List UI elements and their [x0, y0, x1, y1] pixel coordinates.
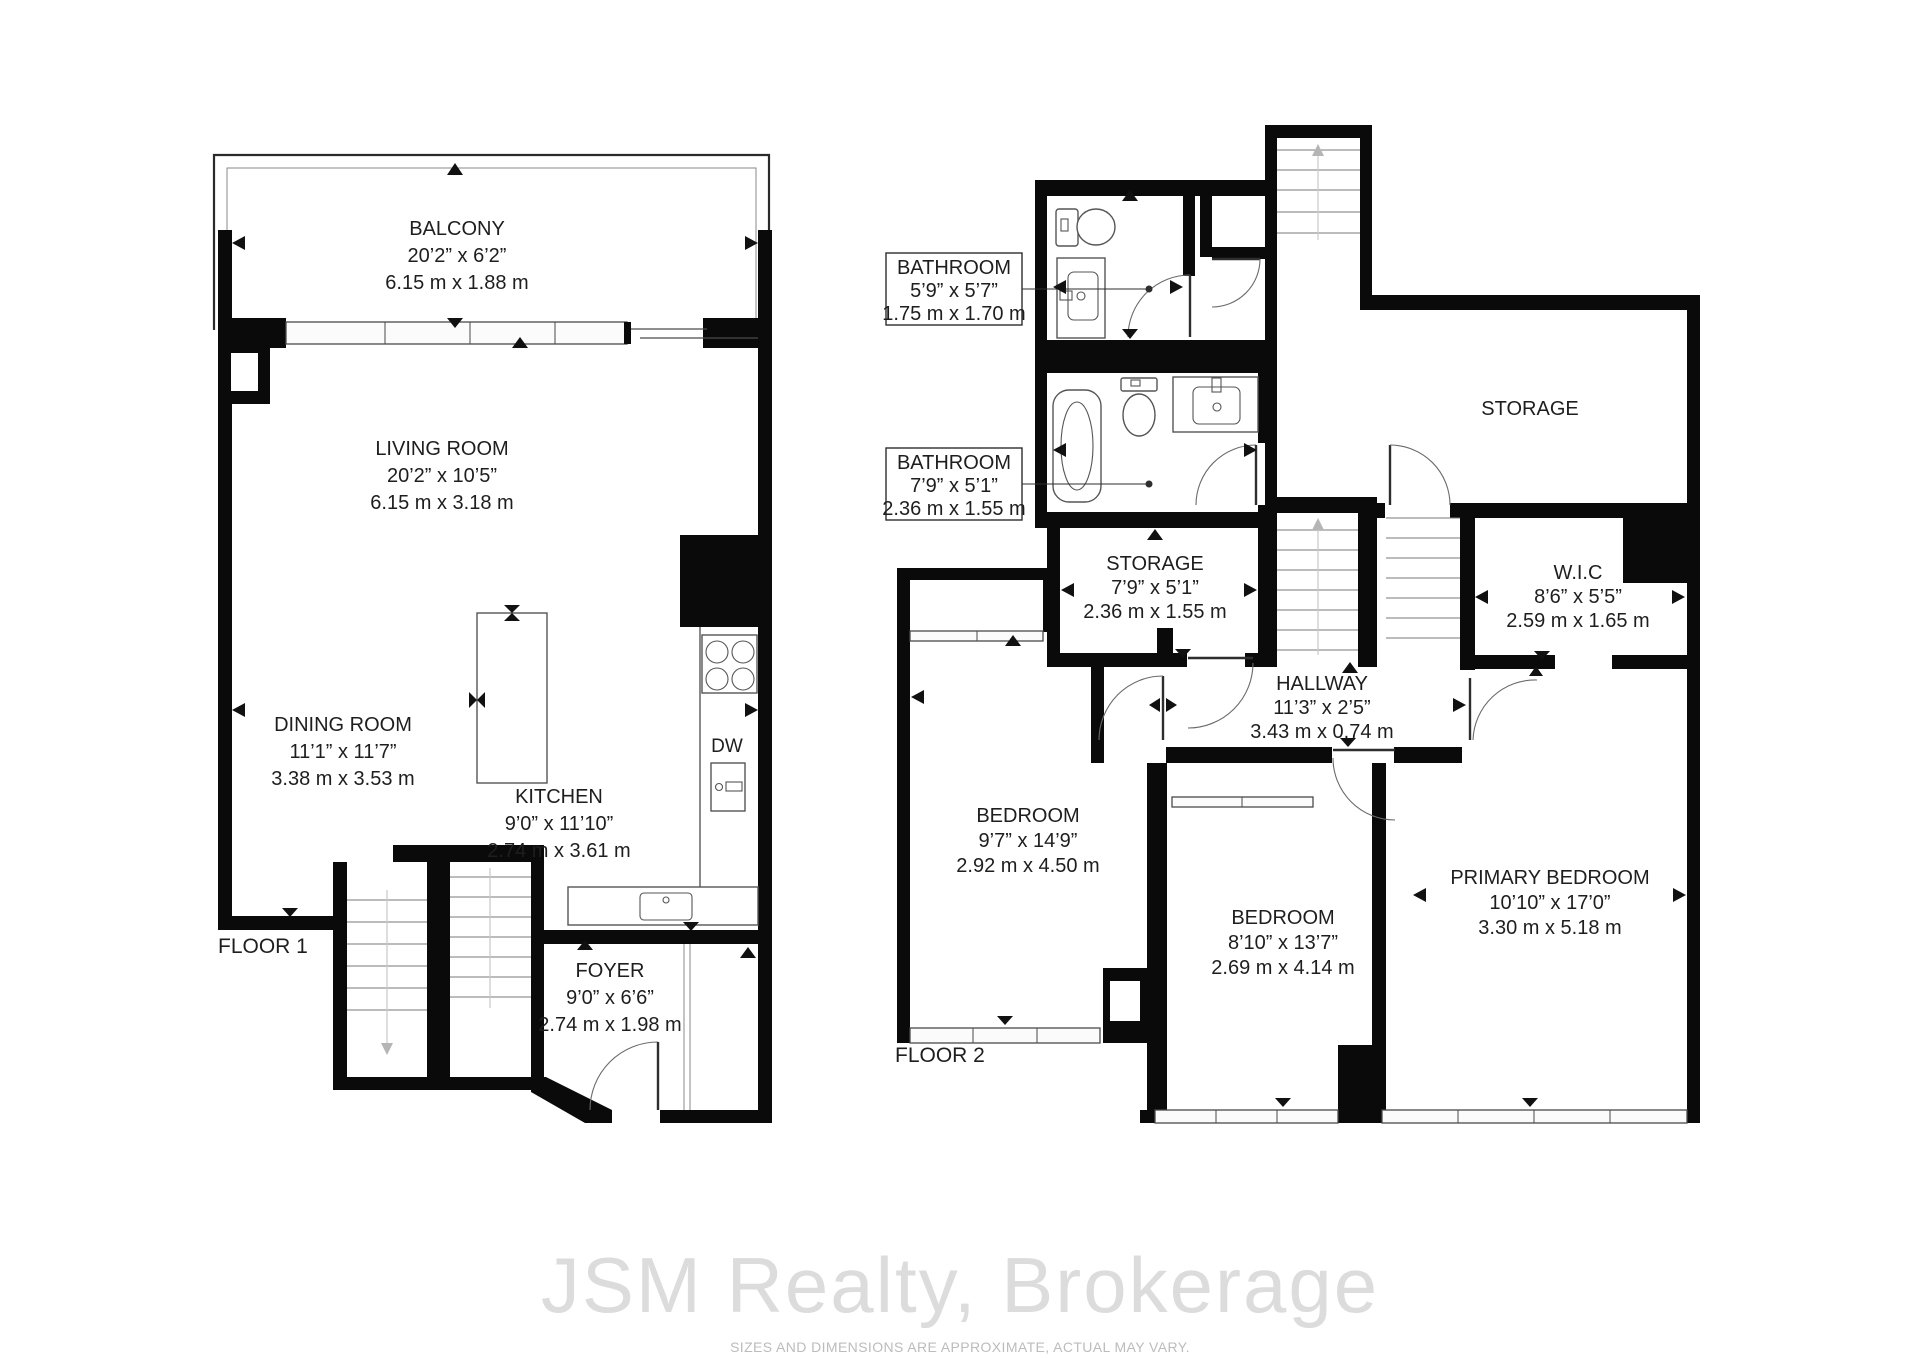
bath-upper-metric: 1.75 m x 1.70 m: [882, 303, 1025, 325]
living-imperial: 20’2” x 10’5”: [387, 465, 497, 487]
room-label-dining: DINING ROOM 11’1” x 11’7” 3.38 m x 3.53 …: [271, 714, 414, 790]
door-bathroom-upper: [1128, 275, 1190, 337]
dining-metric: 3.38 m x 3.53 m: [271, 768, 414, 790]
bedroom-left-imperial: 9’7” x 14’9”: [979, 830, 1078, 852]
bedroom-middle-metric: 2.69 m x 4.14 m: [1211, 957, 1354, 979]
door-storage-small: [1188, 658, 1253, 728]
balcony-metric: 6.15 m x 1.88 m: [385, 272, 528, 294]
bathtub-icon: [1053, 390, 1101, 502]
room-label-foyer: FOYER 9’0” x 6’6” 2.74 m x 1.98 m: [538, 960, 681, 1036]
door-bedroom-left: [1099, 676, 1163, 740]
bath-lower-name: BATHROOM: [897, 452, 1011, 474]
callout-bathroom-upper: BATHROOM 5’9” x 5’7” 1.75 m x 1.70 m: [882, 253, 1152, 325]
primary-name: PRIMARY BEDROOM: [1450, 867, 1649, 889]
kitchen-island: [469, 605, 547, 783]
kitchen-metric: 2.74 m x 3.61 m: [487, 840, 630, 862]
balcony-name: BALCONY: [409, 218, 505, 240]
hallway-metric: 3.43 m x 0.74 m: [1250, 721, 1393, 743]
toilet-icon-lower: [1121, 378, 1157, 436]
primary-imperial: 10’10” x 17’0”: [1489, 892, 1610, 914]
wic-imperial: 8’6” x 5’5”: [1534, 586, 1622, 608]
brokerage-watermark: JSM Realty, Brokerage: [541, 1241, 1379, 1329]
sink-icon-lower: [1173, 377, 1258, 432]
entry-door: [590, 1042, 658, 1110]
disclaimer-text: SIZES AND DIMENSIONS ARE APPROXIMATE, AC…: [730, 1339, 1190, 1355]
storage-large-name: STORAGE: [1481, 398, 1578, 420]
stairs-floor2-top: [1277, 144, 1360, 240]
room-label-kitchen: KITCHEN 9’0” x 11’10” 2.74 m x 3.61 m: [487, 786, 630, 862]
floorplan-canvas: BALCONY 20’2” x 6’2” 6.15 m x 1.88 m LIV…: [0, 0, 1920, 1358]
dishwasher-label: DW: [711, 736, 743, 757]
door-storage-large: [1390, 445, 1450, 505]
bedroom-middle-imperial: 8’10” x 13’7”: [1228, 932, 1338, 954]
balcony-imperial: 20’2” x 6’2”: [408, 245, 507, 267]
toilet-icon-upper: [1056, 209, 1115, 246]
hallway-name: HALLWAY: [1276, 673, 1368, 695]
room-label-living: LIVING ROOM 20’2” x 10’5” 6.15 m x 3.18 …: [370, 438, 513, 514]
door-primary: [1470, 678, 1537, 740]
floor2-plan: BATHROOM 5’9” x 5’7” 1.75 m x 1.70 m BAT…: [882, 125, 1700, 1123]
stove-icon: [702, 635, 757, 693]
kitchen-imperial: 9’0” x 11’10”: [505, 813, 614, 835]
room-label-primary: PRIMARY BEDROOM 10’10” x 17’0” 3.30 m x …: [1450, 867, 1649, 939]
door-landing-closet: [1212, 259, 1260, 307]
wic-name: W.I.C: [1554, 562, 1603, 584]
bedroom-left-metric: 2.92 m x 4.50 m: [956, 855, 1099, 877]
bath-upper-name: BATHROOM: [897, 257, 1011, 279]
room-label-bedroom-middle: BEDROOM 8’10” x 13’7” 2.69 m x 4.14 m: [1211, 907, 1354, 979]
footer: JSM Realty, Brokerage SIZES AND DIMENSIO…: [541, 1241, 1379, 1355]
floor1-plan: BALCONY 20’2” x 6’2” 6.15 m x 1.88 m LIV…: [214, 155, 772, 1123]
bath-lower-imperial: 7’9” x 5’1”: [910, 475, 998, 497]
bedroom-left-name: BEDROOM: [976, 805, 1079, 827]
living-name: LIVING ROOM: [375, 438, 508, 460]
storage-small-metric: 2.36 m x 1.55 m: [1083, 601, 1226, 623]
foyer-imperial: 9’0” x 6’6”: [566, 987, 654, 1009]
wic-metric: 2.59 m x 1.65 m: [1506, 610, 1649, 632]
storage-small-name: STORAGE: [1106, 553, 1203, 575]
sink-icon-upper: [1057, 258, 1105, 338]
bedroom-middle-name: BEDROOM: [1231, 907, 1334, 929]
room-label-bedroom-left: BEDROOM 9’7” x 14’9” 2.92 m x 4.50 m: [956, 805, 1099, 877]
room-label-balcony: BALCONY 20’2” x 6’2” 6.15 m x 1.88 m: [385, 218, 528, 294]
balcony-railing: [214, 155, 769, 330]
kitchen-name: KITCHEN: [515, 786, 603, 808]
callout-bathroom-lower: BATHROOM 7’9” x 5’1” 2.36 m x 1.55 m: [882, 448, 1152, 520]
hallway-imperial: 11’3” x 2’5”: [1273, 697, 1370, 719]
dishwasher-icon: [711, 763, 745, 811]
room-label-storage-small: STORAGE 7’9” x 5’1” 2.36 m x 1.55 m: [1083, 553, 1226, 623]
floor1-label: FLOOR 1: [218, 935, 308, 958]
foyer-metric: 2.74 m x 1.98 m: [538, 1014, 681, 1036]
dining-imperial: 11’1” x 11’7”: [289, 741, 396, 763]
storage-small-imperial: 7’9” x 5’1”: [1111, 577, 1199, 599]
bath-upper-imperial: 5’9” x 5’7”: [910, 280, 998, 302]
room-label-hallway: HALLWAY 11’3” x 2’5” 3.43 m x 0.74 m: [1250, 673, 1393, 743]
primary-metric: 3.30 m x 5.18 m: [1478, 917, 1621, 939]
living-metric: 6.15 m x 3.18 m: [370, 492, 513, 514]
foyer-name: FOYER: [576, 960, 645, 982]
room-label-storage-large: STORAGE: [1481, 398, 1578, 420]
dining-name: DINING ROOM: [274, 714, 412, 736]
floor2-label: FLOOR 2: [895, 1044, 985, 1067]
bath-lower-metric: 2.36 m x 1.55 m: [882, 498, 1025, 520]
foyer-window: [684, 944, 690, 1110]
